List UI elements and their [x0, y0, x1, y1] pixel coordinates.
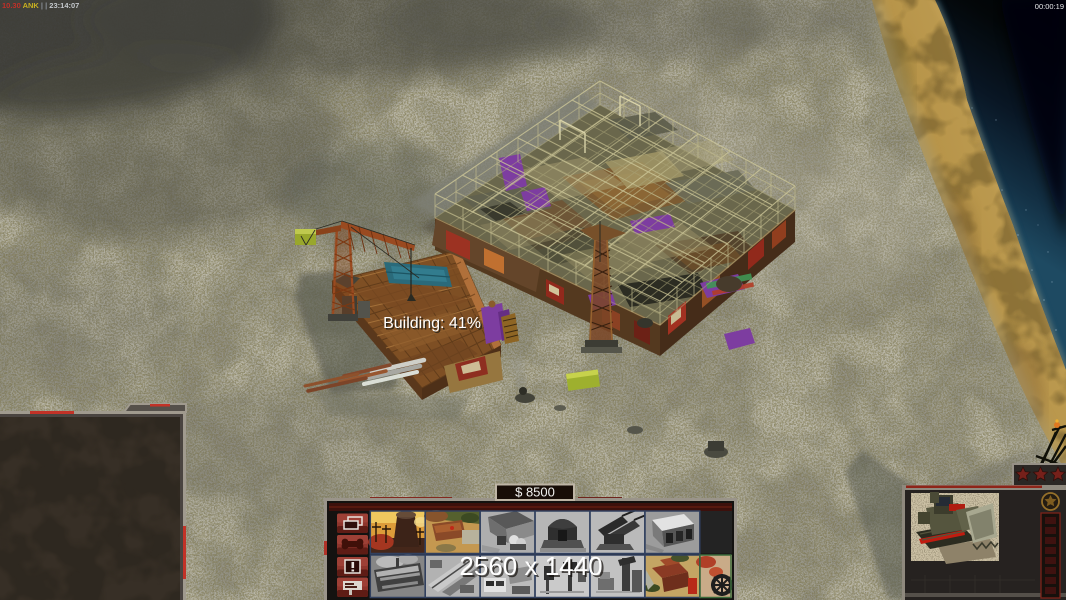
svg-text:10.30 ANK | | 23:14:07: 10.30 ANK | | 23:14:07 [2, 1, 79, 10]
svg-text:Building: 41%: Building: 41% [383, 315, 481, 332]
svg-text:$ 8500: $ 8500 [515, 485, 555, 500]
svg-text:2560 x 1440: 2560 x 1440 [459, 551, 602, 581]
svg-text:00:00:19: 00:00:19 [1035, 2, 1064, 11]
